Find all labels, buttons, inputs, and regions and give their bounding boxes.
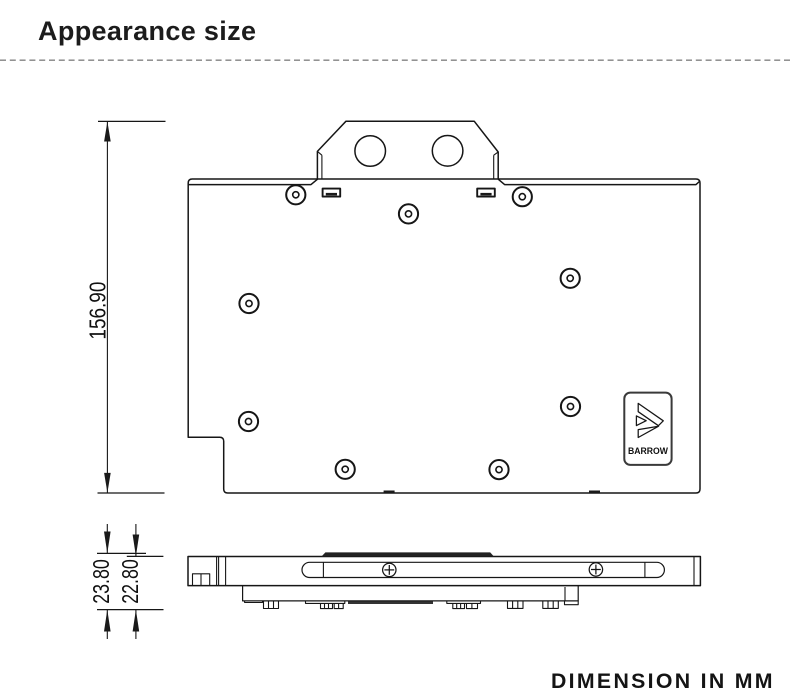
svg-text:156.90: 156.90	[84, 282, 110, 340]
svg-text:BARROW: BARROW	[628, 446, 668, 456]
svg-text:22.80: 22.80	[117, 559, 143, 604]
svg-text:23.80: 23.80	[88, 559, 114, 604]
